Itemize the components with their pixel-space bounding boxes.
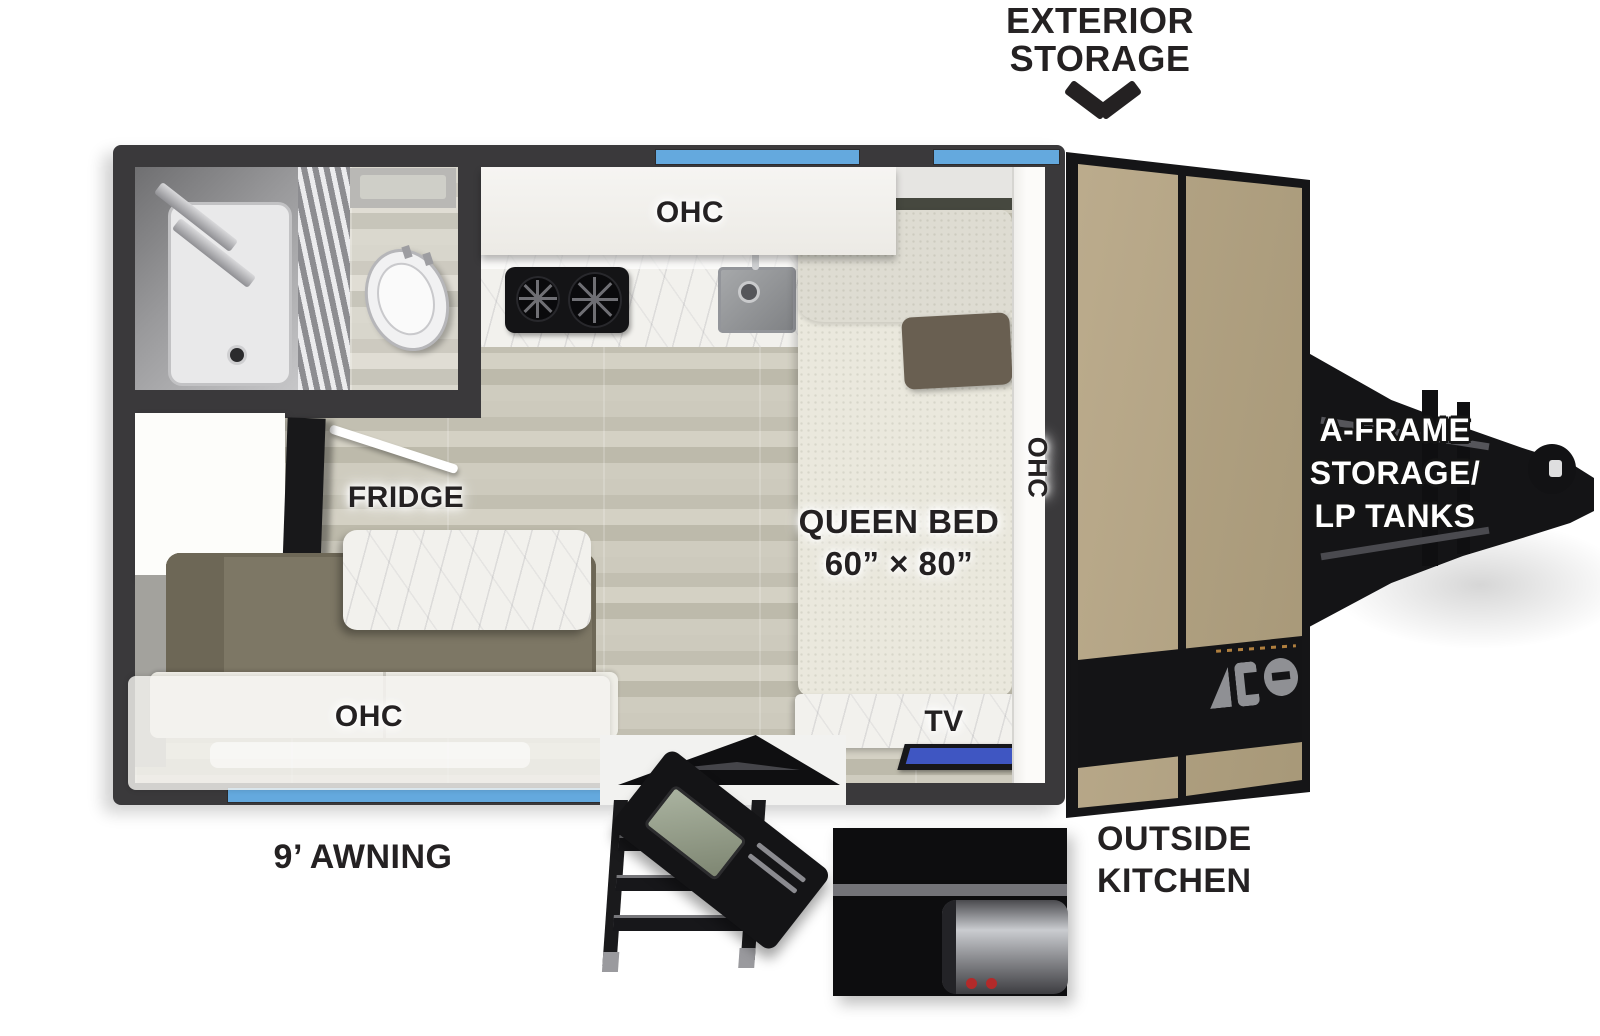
outside-kitchen-griddle <box>942 900 1068 994</box>
a-frame-label-line2: STORAGE/ <box>1310 455 1481 492</box>
floorplan-canvas: EXTERIOR STORAGE A-FRAME STORAGE/ LP TAN… <box>0 0 1600 1036</box>
queen-bed-label-line2: 60” × 80” <box>825 545 974 583</box>
exterior-storage-label-line2: STORAGE <box>1010 38 1191 80</box>
tv-screen <box>906 748 1017 764</box>
fridge-cabinet <box>135 413 285 575</box>
kitchen-sink <box>718 267 796 333</box>
bed-head-rail <box>896 198 1012 210</box>
burner-left <box>516 276 560 322</box>
hitch-coupler-latch <box>1549 460 1562 477</box>
bedside-ohc-label: OHC <box>1021 437 1052 499</box>
dinette-ohc-inset <box>210 742 530 768</box>
tv-label: TV <box>924 705 963 739</box>
bathroom-counter-inset <box>360 175 446 199</box>
griddle-knob-2 <box>986 978 997 989</box>
bathroom-wall-right <box>458 167 481 418</box>
kitchen-ohc-label: OHC <box>656 196 724 230</box>
sink-drain <box>741 284 757 300</box>
fridge <box>282 417 325 570</box>
queen-bed-label-line1: QUEEN BED <box>799 503 1000 541</box>
fridge-label: FRIDGE <box>348 481 464 515</box>
chevron-down-icon <box>1062 80 1142 122</box>
window-top-2 <box>933 149 1060 165</box>
outside-kitchen-label-line2: KITCHEN <box>1097 862 1252 901</box>
bed-pillow <box>901 312 1013 390</box>
dinette-table <box>343 530 591 630</box>
bathroom-accordion-door <box>298 167 350 390</box>
a-frame-label-line3: LP TANKS <box>1314 498 1475 535</box>
awning-label: 9’ AWNING <box>274 838 453 877</box>
exterior-storage-label-line1: EXTERIOR <box>1006 0 1194 42</box>
outside-kitchen-label-line1: OUTSIDE <box>1097 820 1252 859</box>
window-top-1 <box>655 149 860 165</box>
dinette-ohc-label: OHC <box>335 700 403 734</box>
burner-right <box>568 272 622 328</box>
front-storage-compartment <box>1066 150 1312 818</box>
griddle-knob-1 <box>966 978 977 989</box>
outside-kitchen-shelf <box>833 884 1067 896</box>
shower-drain <box>230 348 244 362</box>
a-frame-label-line1: A-FRAME <box>1319 412 1470 449</box>
